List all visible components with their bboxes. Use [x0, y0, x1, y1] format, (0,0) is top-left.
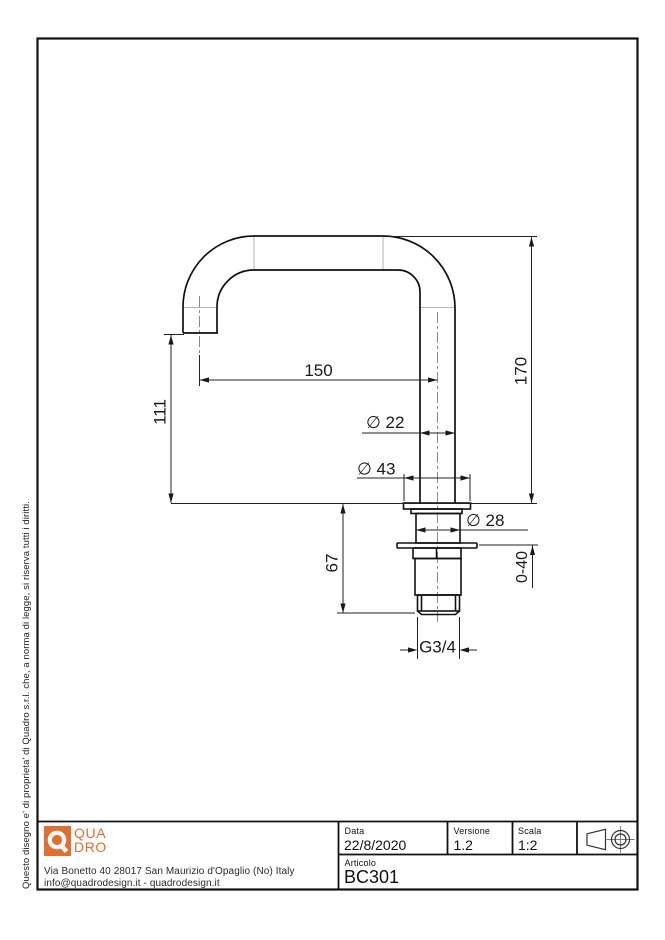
company-address: Via Bonetto 40 28017 San Maurizio d'Opag… [44, 866, 295, 877]
dim-tube-diameter: ∅ 22 [366, 413, 404, 432]
date-value: 22/8/2020 [344, 837, 406, 853]
logo-q-glyph [44, 826, 71, 856]
dim-flange-diameter: ∅ 43 [357, 460, 395, 479]
article-value: BC301 [344, 867, 399, 888]
centerlines [200, 296, 438, 622]
tangent-lines [184, 237, 454, 308]
scale-value: 1:2 [518, 837, 537, 853]
sheet-border [38, 39, 638, 890]
dim-thread: G3/4 [419, 638, 456, 657]
dim-outlet-height: 111 [151, 399, 170, 425]
version-value: 1.2 [454, 837, 473, 853]
scale-label: Scala [518, 826, 542, 836]
dim-body-diameter: ∅ 28 [466, 511, 504, 530]
dim-shank-length: 67 [323, 554, 342, 573]
dimension-lines [164, 237, 538, 660]
dimension-arrowheads [168, 237, 535, 653]
logo-wordmark-line2: DRO [74, 841, 107, 855]
version-label: Versione [454, 826, 491, 836]
dim-clamp-range: 0-40 [514, 551, 531, 583]
projection-symbol-icon [587, 826, 635, 853]
dimension-texts: 150 170 111 ∅ 22 ∅ 43 ∅ 28 67 0-40 G3/4 [151, 357, 532, 657]
drawing-sheet-page: { "sheet": { "side_note": "Questo disegn… [0, 0, 665, 940]
ownership-note: Questo disegno e' di proprieta' di Quadr… [21, 501, 32, 889]
logo-wordmark: QUA DRO [74, 827, 107, 854]
company-contacts: info@quadrodesign.it - quadrodesign.it [44, 878, 220, 889]
dim-total-height: 170 [512, 357, 531, 385]
dim-spout-reach: 150 [304, 361, 332, 380]
article-label: Articolo [345, 858, 377, 868]
quadro-logo-icon [44, 826, 71, 856]
technical-drawing-canvas: 150 170 111 ∅ 22 ∅ 43 ∅ 28 67 0-40 G3/4 [0, 0, 665, 940]
date-label: Data [345, 826, 365, 836]
